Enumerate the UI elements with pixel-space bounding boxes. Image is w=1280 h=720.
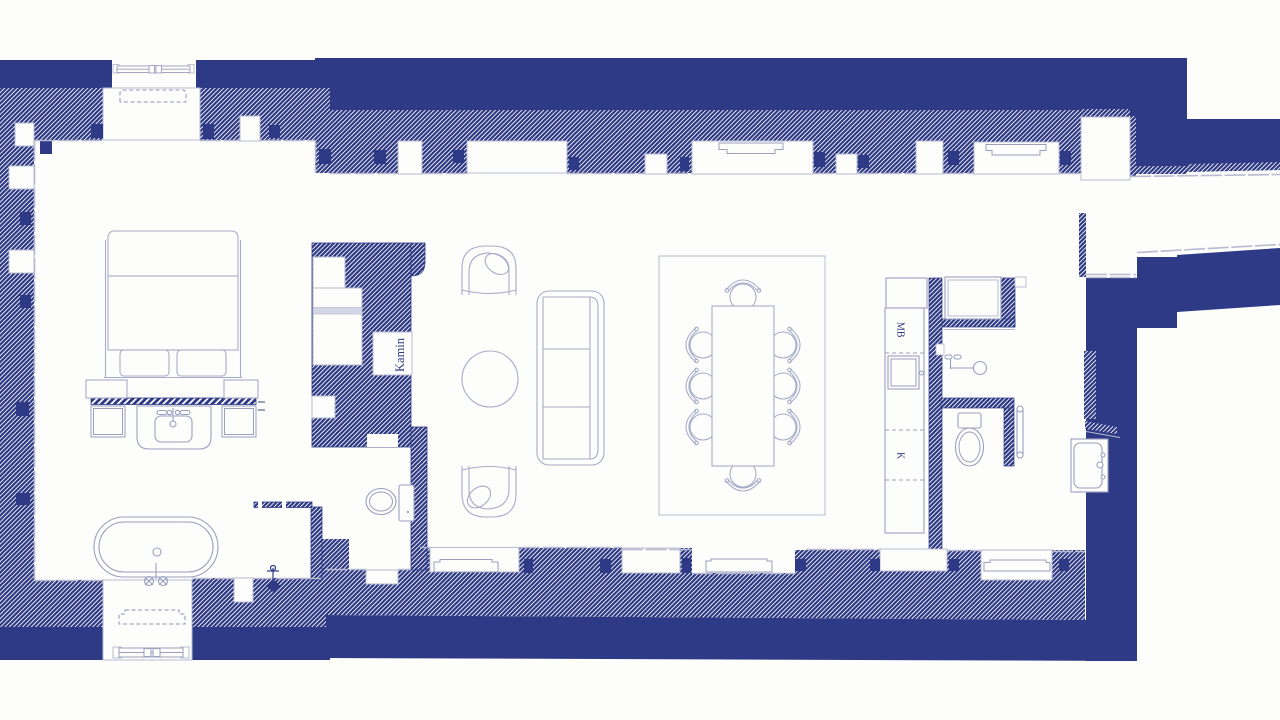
svg-text:MB: MB: [895, 322, 906, 338]
svg-text:K: K: [895, 452, 906, 460]
svg-text:Kamin: Kamin: [393, 337, 407, 372]
